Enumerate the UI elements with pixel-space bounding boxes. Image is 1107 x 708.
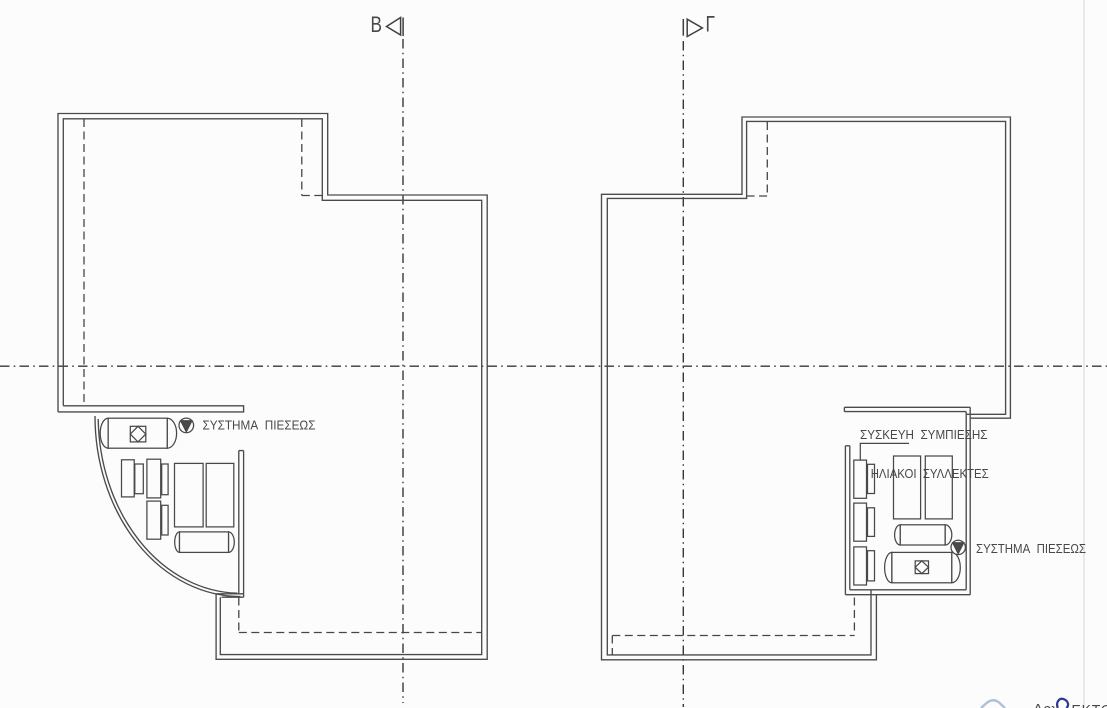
svg-text:Γ: Γ: [706, 12, 716, 37]
svg-text:ΕΚΤΟ: ΕΚΤΟ: [1072, 702, 1107, 708]
svg-text:Β: Β: [371, 12, 383, 37]
svg-text:ΗΛΙΑΚΟΙ ΣΥΛΛΕΚΤΕΣ: ΗΛΙΑΚΟΙ ΣΥΛΛΕΚΤΕΣ: [871, 466, 989, 481]
svg-text:ΣΥΣΤΗΜΑ ΠΙΕΣΕΩΣ: ΣΥΣΤΗΜΑ ΠΙΕΣΕΩΣ: [976, 541, 1086, 556]
svg-text:ΣΥΣΤΗΜΑ ΠΙΕΣΕΩΣ: ΣΥΣΤΗΜΑ ΠΙΕΣΕΩΣ: [203, 418, 316, 433]
svg-text:Αρχ: Αρχ: [1033, 701, 1060, 708]
svg-text:ΣΥΣΚΕΥΗ ΣΥΜΠΙΕΣΗΣ: ΣΥΣΚΕΥΗ ΣΥΜΠΙΕΣΗΣ: [860, 427, 988, 442]
